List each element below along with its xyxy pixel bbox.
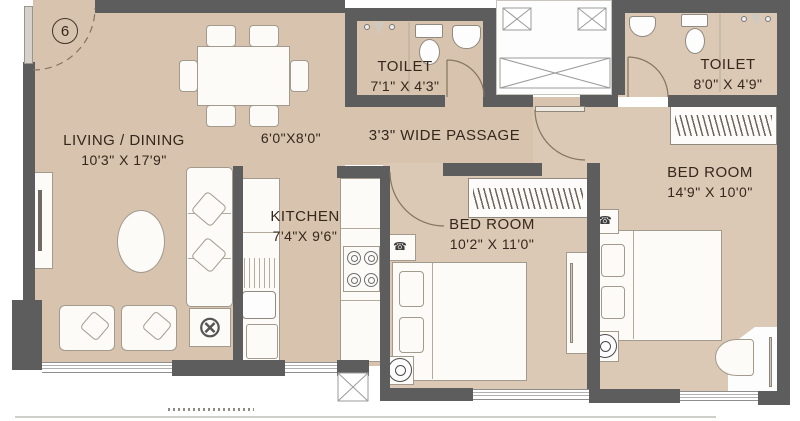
tap-icon [765, 16, 771, 22]
wall-segment [345, 95, 445, 107]
shower-icon [374, 22, 384, 35]
wall-segment [23, 62, 35, 302]
wall-segment [483, 8, 496, 107]
wall-segment [668, 95, 777, 107]
coffee-table [117, 210, 165, 273]
shower-icon [751, 14, 761, 27]
room-name: TOILET [665, 55, 791, 75]
room-dims: 7'4"X 9'6" [250, 227, 360, 245]
tap-icon [741, 16, 747, 22]
room-name: BED ROOM [403, 215, 581, 235]
wall-segment [380, 166, 390, 390]
wall-column [12, 300, 42, 370]
bed-pillow [601, 244, 625, 277]
dining-chair [206, 25, 236, 47]
entrance-door-leaf [24, 6, 33, 64]
room-name: LIVING / DINING [40, 131, 208, 151]
dining-chair [206, 105, 236, 127]
dining-chair [249, 105, 279, 127]
tv-screen [38, 190, 42, 251]
wall-segment [233, 166, 243, 364]
wall-segment [612, 13, 625, 95]
dining-table [197, 46, 290, 106]
bed-seam [432, 263, 433, 379]
kitchen-label: KITCHEN 7'4"X 9'6" [250, 207, 360, 245]
side-table: ⊗ [189, 308, 231, 347]
lobby-area [496, 0, 612, 95]
burner-icon [347, 273, 361, 287]
chair [715, 339, 754, 376]
unit-number: 6 [61, 23, 69, 40]
room-dims: 10'3" X 17'9" [40, 151, 208, 169]
toilet2-label: TOILET 8'0" X 4'9" [665, 55, 791, 93]
dining-chair [290, 60, 309, 92]
wall-segment [612, 0, 790, 13]
room-dims: 10'2" X 11'0" [403, 235, 581, 253]
passage-label: 3'3" WIDE PASSAGE [352, 126, 537, 146]
mirror [570, 263, 573, 343]
wc-bowl [685, 28, 705, 54]
room-dims: 6'0"X8'0" [246, 129, 336, 147]
kitchen-appliance [246, 324, 278, 359]
wardrobe [670, 105, 777, 145]
wall-segment [95, 0, 345, 13]
room-name: 3'3" WIDE PASSAGE [352, 126, 537, 146]
unit-number-badge: 6 [52, 18, 78, 44]
bedroom2-label: BED ROOM 14'9" X 10'0" [630, 163, 790, 201]
drainboard [240, 258, 277, 288]
wall-segment [580, 95, 618, 107]
dining-size-label: 6'0"X8'0" [246, 129, 336, 147]
floor-plan: ⊗ ☎ ☎ [0, 0, 800, 421]
wardrobe [468, 178, 588, 218]
wall-segment [758, 391, 790, 405]
tv-unit [33, 172, 53, 269]
bed-seam [633, 231, 634, 339]
mirror [769, 337, 772, 387]
sofa [186, 167, 233, 307]
bed-pillow [601, 286, 625, 319]
dining-chair [249, 25, 279, 47]
burner-icon [347, 251, 361, 265]
bedroom2-door-leaf [535, 106, 585, 112]
counter-seam [341, 300, 381, 301]
wall-segment [337, 360, 369, 376]
room-dims: 14'9" X 10'0" [630, 183, 790, 201]
window [285, 362, 337, 373]
wall-segment [589, 389, 680, 403]
bed-pillow [399, 317, 424, 353]
wall-segment [488, 95, 533, 107]
bed-pillow [399, 271, 424, 307]
tap-icon [389, 24, 395, 30]
tap-icon [364, 24, 370, 30]
bedroom1-label: BED ROOM 10'2" X 11'0" [403, 215, 581, 253]
micro-dots [168, 408, 254, 411]
circled-cross-table-icon: ⊗ [197, 313, 222, 343]
stove [343, 246, 380, 292]
wc-cistern [415, 24, 443, 38]
wall-segment [172, 360, 285, 376]
living-dining-label: LIVING / DINING 10'3" X 17'9" [40, 131, 208, 169]
burner-icon [364, 251, 378, 265]
wall-segment [443, 163, 542, 176]
kitchen-sink [242, 291, 276, 319]
room-dims: 7'1" X 4'3" [350, 77, 460, 95]
wall-segment [345, 8, 495, 21]
window [473, 389, 589, 400]
dining-chair [179, 60, 198, 92]
wc-cistern [681, 14, 708, 27]
burner-icon [364, 273, 378, 287]
room-dims: 8'0" X 4'9" [665, 75, 791, 93]
room-name: BED ROOM [630, 163, 790, 183]
toilet1-label: TOILET 7'1" X 4'3" [350, 57, 460, 95]
ceiling-fan-icon [388, 358, 412, 382]
telephone-icon: ☎ [598, 216, 612, 227]
room-name: TOILET [350, 57, 460, 77]
window [42, 362, 172, 373]
wall-segment [380, 388, 473, 401]
room-name: KITCHEN [250, 207, 360, 227]
wall-segment [587, 163, 600, 393]
window [680, 391, 758, 401]
wardrobe-hatch [675, 115, 772, 136]
wardrobe-hatch [473, 188, 583, 209]
